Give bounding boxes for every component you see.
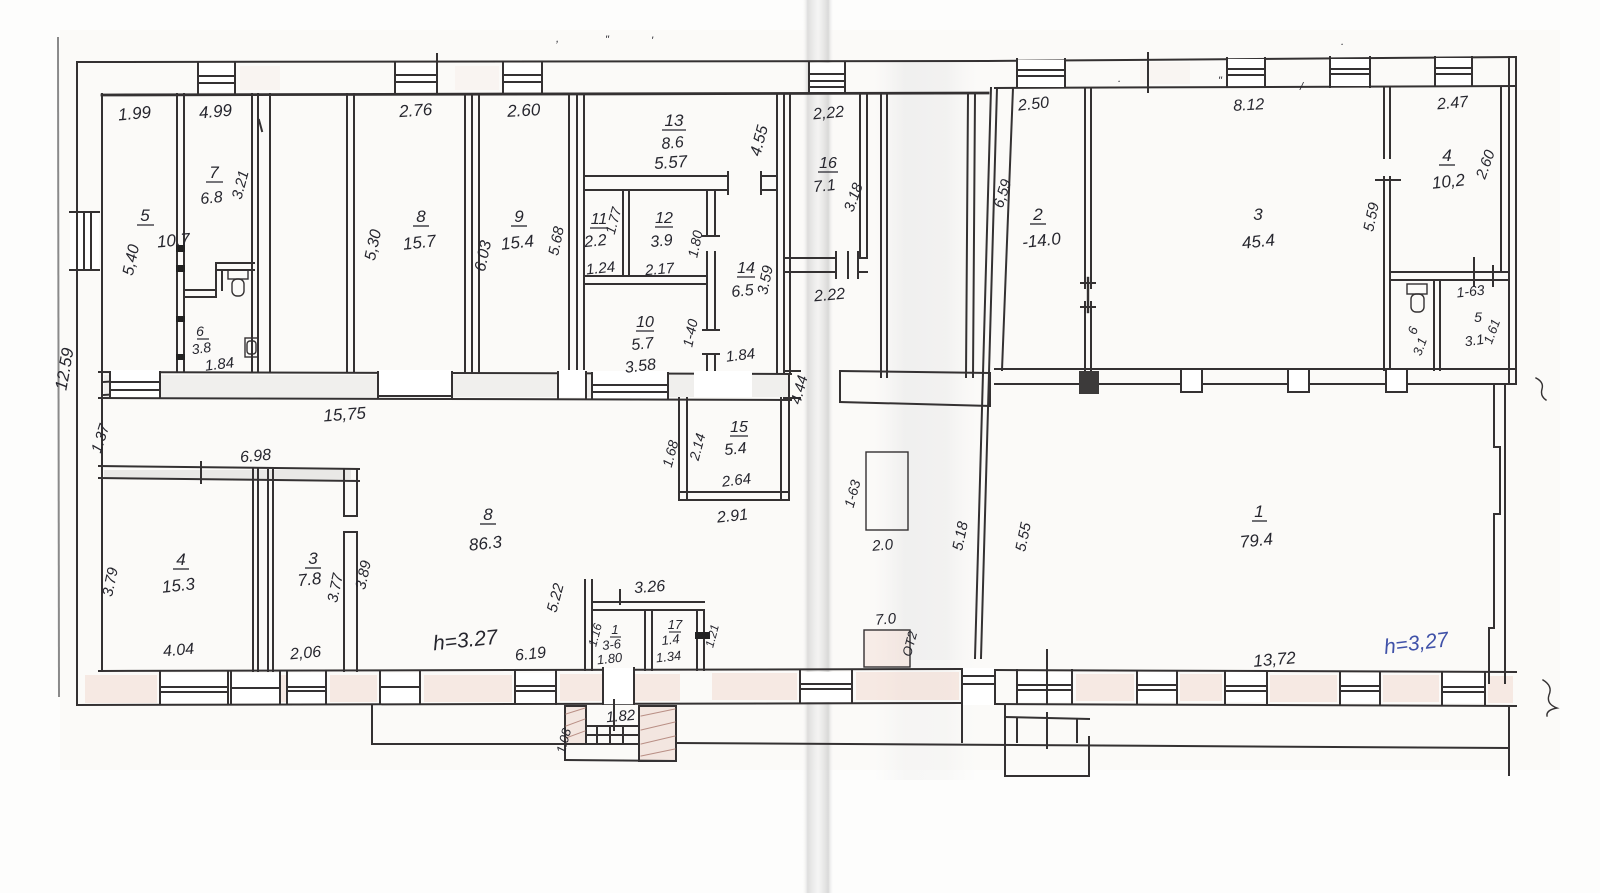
svg-text:4.04: 4.04 (162, 641, 195, 661)
svg-text:5: 5 (1474, 309, 1482, 325)
svg-text:3.26: 3.26 (634, 578, 666, 597)
svg-text:1.24: 1.24 (585, 259, 616, 279)
svg-text:.: . (1341, 36, 1344, 48)
svg-text:3.8: 3.8 (191, 339, 213, 358)
svg-text:15,75: 15,75 (323, 404, 367, 426)
svg-text:1.82: 1.82 (605, 707, 636, 727)
svg-text:2,06: 2,06 (288, 644, 322, 664)
svg-text:7: 7 (209, 163, 219, 182)
svg-text:5: 5 (140, 206, 150, 225)
svg-text:3: 3 (308, 549, 318, 568)
svg-text:5.4: 5.4 (724, 440, 748, 459)
svg-text:2,22: 2,22 (811, 104, 845, 124)
svg-text:10: 10 (636, 314, 654, 331)
svg-text:1-63: 1-63 (1456, 282, 1486, 301)
svg-text:12: 12 (655, 210, 673, 227)
svg-text:2.91: 2.91 (715, 506, 749, 526)
svg-text:8: 8 (483, 505, 493, 524)
svg-text:2.22: 2.22 (812, 286, 846, 306)
svg-text:1.80: 1.80 (596, 650, 623, 668)
svg-text:13,72: 13,72 (1253, 648, 1298, 671)
svg-text:2: 2 (1032, 205, 1043, 224)
svg-text:1.84: 1.84 (204, 354, 235, 374)
svg-text:79.4: 79.4 (1239, 529, 1274, 551)
svg-text:1.99: 1.99 (117, 103, 152, 125)
svg-text:2.76: 2.76 (397, 100, 433, 121)
svg-text:2.0: 2.0 (870, 536, 894, 555)
svg-text:5.7: 5.7 (631, 335, 656, 354)
svg-text:5.57: 5.57 (653, 152, 688, 173)
svg-text:2.2: 2.2 (583, 232, 608, 251)
svg-text:,: , (556, 33, 559, 45)
svg-text:15.4: 15.4 (500, 231, 535, 253)
svg-text:7.1: 7.1 (813, 177, 837, 196)
svg-text:1.4: 1.4 (661, 631, 681, 648)
svg-text:4: 4 (1442, 146, 1451, 165)
svg-text:86.3: 86.3 (468, 532, 503, 554)
svg-text:7.0: 7.0 (874, 610, 897, 629)
svg-text:8.6: 8.6 (661, 134, 685, 153)
svg-text:7.8: 7.8 (297, 569, 323, 590)
svg-text:3.9: 3.9 (650, 232, 674, 251)
svg-text:13: 13 (665, 111, 684, 130)
svg-text:6.5: 6.5 (731, 282, 755, 301)
svg-text:6.98: 6.98 (239, 447, 272, 467)
svg-text:9: 9 (514, 207, 524, 226)
svg-text:6: 6 (196, 323, 204, 339)
svg-text:2.17: 2.17 (643, 260, 675, 280)
svg-text:4.99: 4.99 (198, 101, 233, 123)
svg-text:15.3: 15.3 (161, 574, 196, 596)
svg-text:14: 14 (737, 260, 755, 277)
svg-text:16: 16 (819, 155, 837, 172)
svg-text:3: 3 (1253, 205, 1263, 224)
svg-text:8: 8 (416, 207, 426, 226)
svg-text:1: 1 (1254, 502, 1263, 521)
svg-text:.: . (1118, 73, 1121, 85)
svg-text:4: 4 (176, 550, 185, 569)
svg-text:1.34: 1.34 (655, 648, 682, 666)
svg-text:10.7: 10.7 (156, 230, 191, 252)
svg-text:1: 1 (611, 622, 618, 637)
svg-text:6.19: 6.19 (514, 644, 547, 664)
svg-text:1.84: 1.84 (725, 345, 756, 365)
svg-text:2.60: 2.60 (506, 100, 542, 121)
svg-text:45.4: 45.4 (1241, 230, 1276, 252)
svg-text:17: 17 (668, 617, 683, 632)
svg-text:8.12: 8.12 (1233, 96, 1265, 115)
svg-text:10,2: 10,2 (1431, 170, 1466, 192)
svg-text:6.8: 6.8 (200, 189, 224, 208)
svg-text:15: 15 (730, 419, 748, 436)
svg-text:2.50: 2.50 (1016, 94, 1050, 114)
svg-text:2.47: 2.47 (1435, 94, 1470, 114)
svg-text:15.7: 15.7 (402, 231, 437, 253)
